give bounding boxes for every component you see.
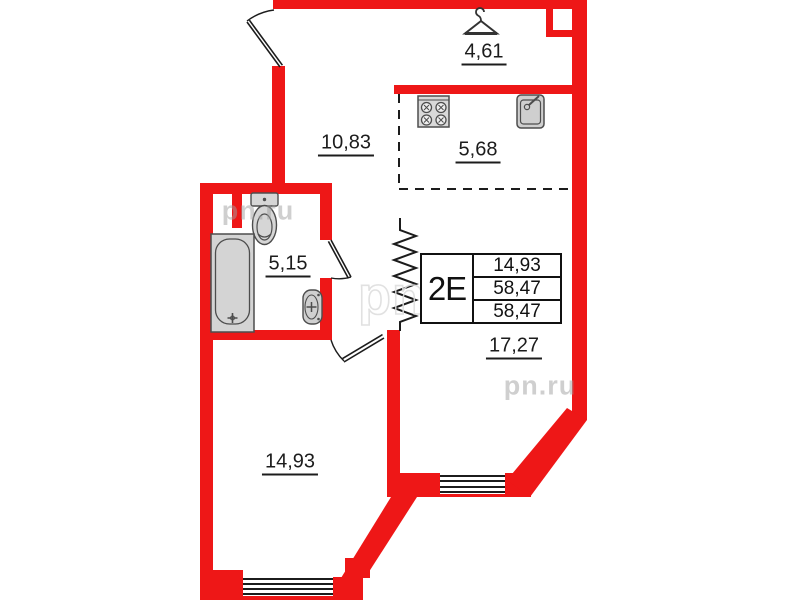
table-row: 58,47	[474, 278, 560, 301]
room-label-entry-hall: 4,61	[462, 41, 507, 66]
apartment-type-label: 2Е	[422, 255, 474, 322]
wall-hall-left	[272, 66, 285, 190]
watermark-outline: pn	[358, 265, 426, 327]
wall-window1-pier	[333, 577, 363, 600]
bathroom-door	[328, 240, 351, 279]
wall-niche-bottom	[546, 30, 573, 37]
apartment-area-values: 14,93 58,47 58,47	[474, 255, 560, 322]
wall-step-notch	[345, 558, 370, 578]
watermark: pn.ru	[504, 371, 577, 402]
window-bedroom	[243, 579, 333, 594]
room-label-bedroom: 14,93	[262, 451, 318, 476]
watermark: pn.ru	[222, 196, 295, 227]
wall-window2-sill	[440, 494, 505, 497]
wall-kitchen-top	[394, 85, 575, 94]
bathtub-icon	[211, 234, 254, 332]
bedroom-door	[331, 335, 384, 362]
stove-icon	[418, 96, 449, 127]
wall-window1-sill	[243, 596, 333, 600]
wall-diagonal-bay	[507, 408, 587, 497]
table-row: 58,47	[474, 301, 560, 322]
table-row: 14,93	[474, 255, 560, 278]
washbasin-icon	[303, 290, 322, 324]
window-living-room	[440, 476, 505, 492]
wall-bath-right-upper	[320, 194, 332, 240]
room-label-living-room: 17,27	[486, 335, 542, 360]
wall-right	[572, 0, 587, 420]
hanger-icon	[465, 8, 497, 33]
wall-top	[273, 0, 587, 9]
wall-window2-left-block	[387, 473, 440, 497]
wall-bottom-left-corner	[200, 570, 243, 600]
apartment-info-table: 2Е 14,93 58,47 58,47	[420, 253, 562, 324]
room-label-hallway: 10,83	[318, 132, 374, 157]
room-label-bathroom: 5,15	[266, 253, 311, 278]
kitchen-sink-icon	[517, 95, 544, 128]
floor-plan: pn	[0, 0, 800, 600]
entrance-door	[247, 10, 282, 67]
room-label-kitchen-zone: 5,68	[456, 139, 501, 164]
wall-between-rooms	[387, 330, 400, 473]
